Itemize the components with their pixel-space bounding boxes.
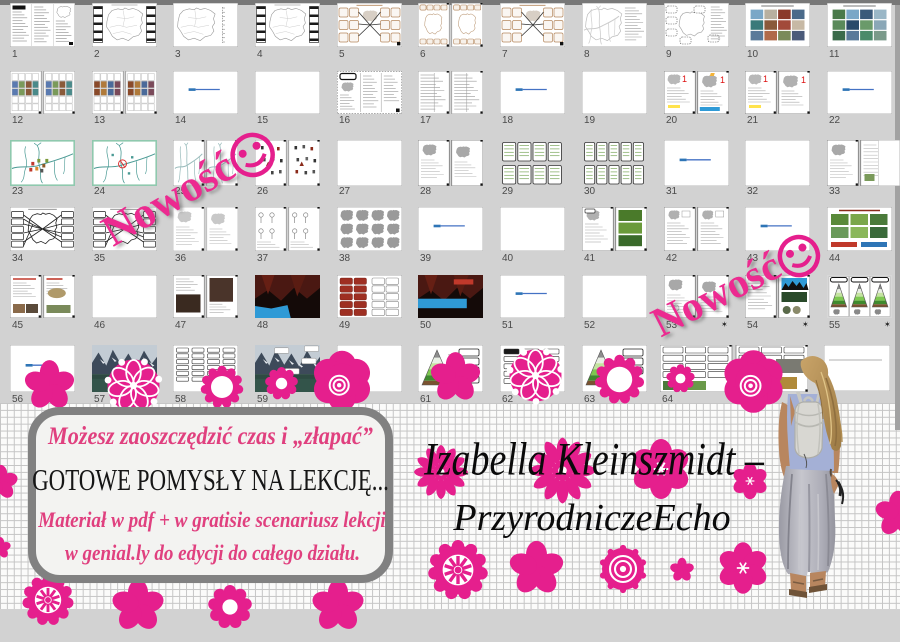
svg-text:1: 1 <box>801 75 806 85</box>
svg-text:1: 1 <box>720 75 725 85</box>
svg-text:1: 1 <box>682 74 687 84</box>
svg-text:1: 1 <box>763 74 768 84</box>
